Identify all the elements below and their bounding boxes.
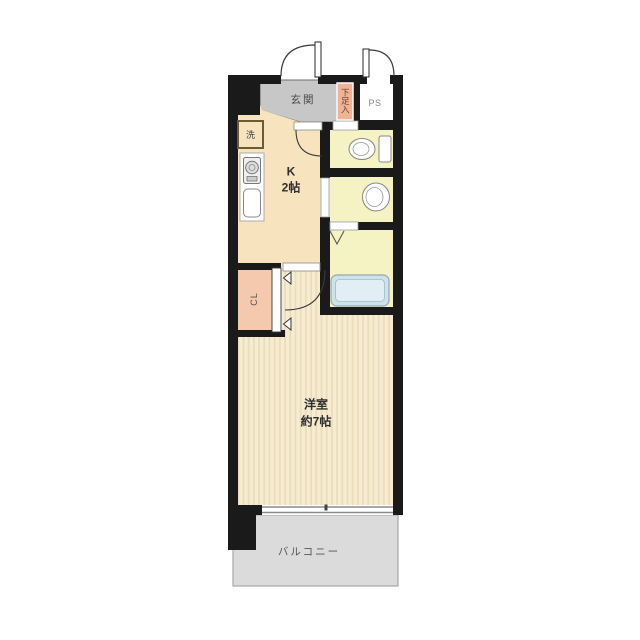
balcony-floor (233, 515, 398, 586)
laundry-box (238, 121, 263, 148)
closet-floor (234, 266, 274, 332)
kitchen-counter (240, 153, 264, 221)
pipe-space-door (363, 49, 394, 77)
entrance-door (281, 42, 321, 77)
floorplan-drawing (0, 0, 640, 640)
washbasin-icon (363, 183, 390, 211)
stove-icon (244, 158, 261, 184)
washroom-sliding-door (321, 178, 329, 217)
toilet-door (333, 121, 358, 130)
shoe-storage-box (337, 83, 353, 120)
pipe-space-floor (356, 84, 393, 122)
sink-icon (244, 189, 261, 217)
bathtub-icon (331, 275, 389, 306)
balcony-window (262, 505, 393, 516)
floorplan-canvas: 玄関 下足入 PS 洗 K 2帖 CL 洋室 約7帖 バルコニー (0, 0, 640, 640)
